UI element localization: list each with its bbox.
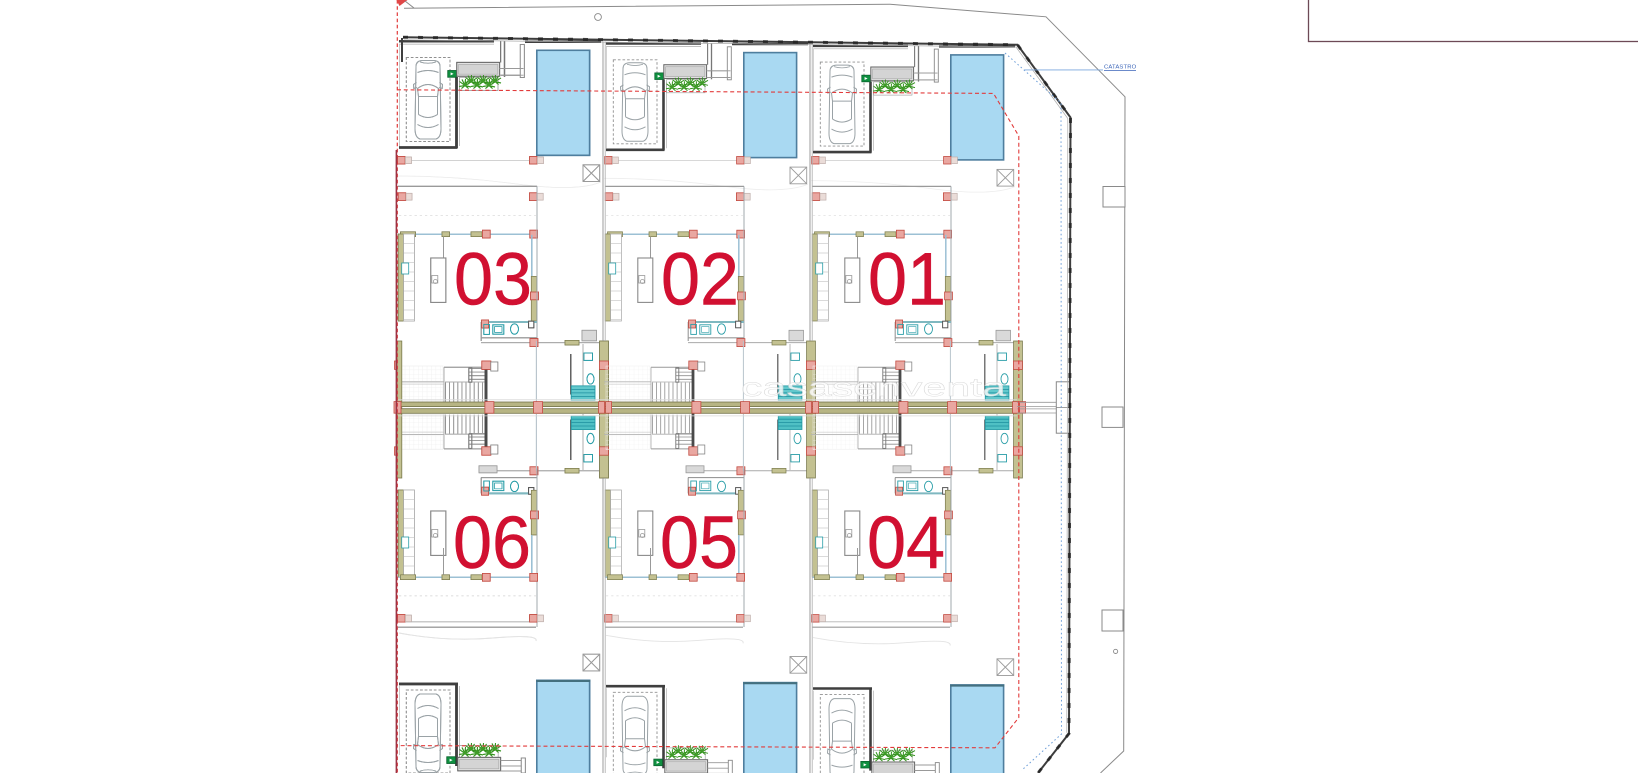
svg-text:02: 02 (661, 238, 739, 321)
svg-text:01: 01 (868, 238, 946, 321)
svg-text:04: 04 (867, 501, 945, 584)
svg-text:casasenventa: casasenventa (741, 372, 1007, 402)
svg-text:05: 05 (660, 501, 738, 584)
svg-text:CATASTRO: CATASTRO (1104, 65, 1137, 71)
svg-text:06: 06 (453, 501, 531, 584)
svg-text:03: 03 (454, 238, 532, 321)
